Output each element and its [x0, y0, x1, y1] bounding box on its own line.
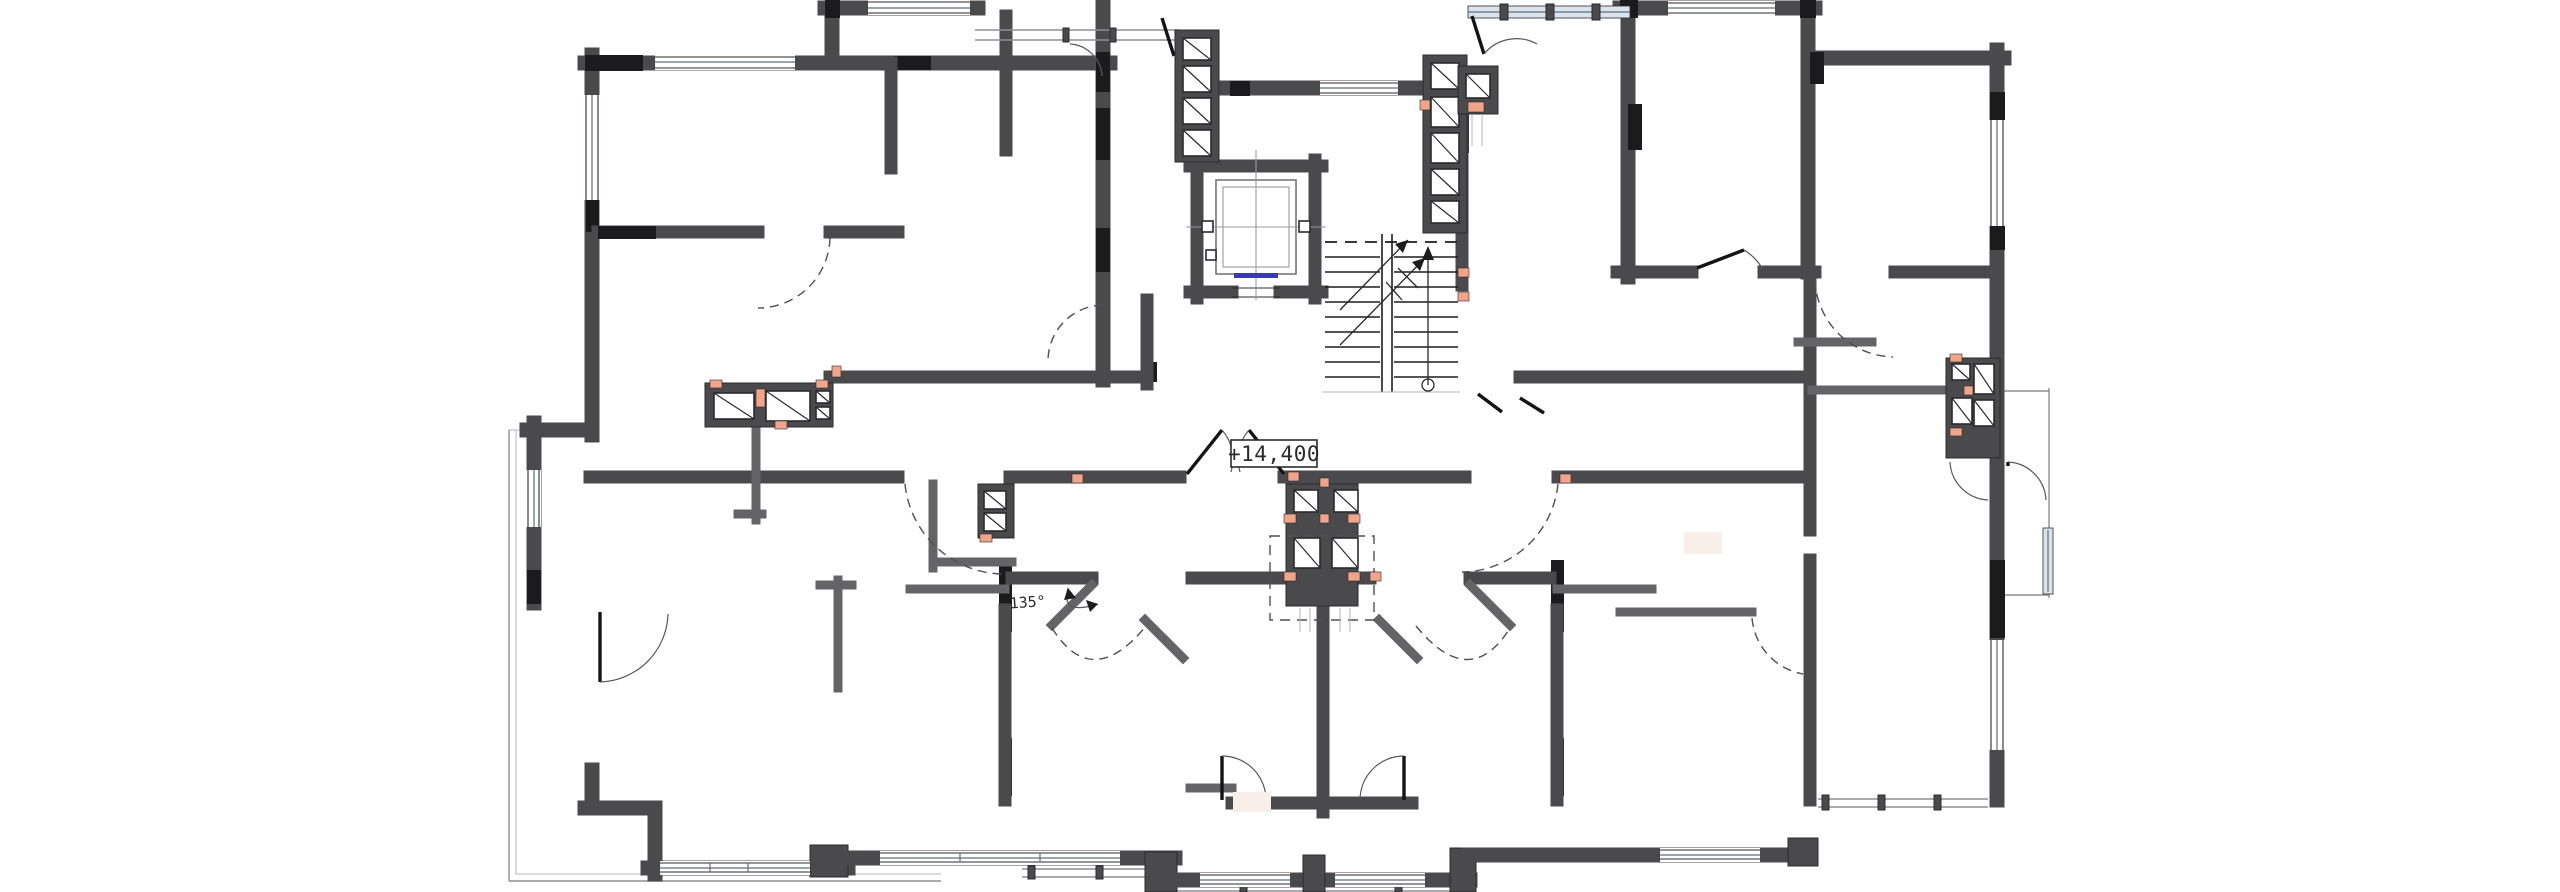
vent-shaft-left-column: [1175, 30, 1219, 162]
vent-shaft-left-corridor: [705, 380, 833, 429]
elevator-shaft: [1186, 150, 1326, 300]
vent-shaft-small-left: [978, 484, 1014, 542]
vent-shaft-right-column: [1420, 55, 1498, 233]
glazed-facade-bands: [975, 4, 1630, 56]
angle-label-text: 135°: [1009, 592, 1046, 612]
balcony-bottom-right-sill: [1818, 795, 1988, 810]
floor-plan-drawing: +14,400 135°: [0, 0, 2560, 892]
vent-shaft-right-corridor: [1946, 354, 2000, 458]
elevator-door-sill: [1234, 273, 1278, 278]
elevation-label-text: +14,400: [1228, 442, 1320, 466]
stairwell: [1322, 234, 1544, 413]
floor-plan-canvas: +14,400 135°: [0, 0, 2560, 892]
balcony-left: [509, 430, 941, 881]
orange-accents: [832, 268, 1571, 581]
elevation-label: +14,400: [1228, 440, 1320, 467]
